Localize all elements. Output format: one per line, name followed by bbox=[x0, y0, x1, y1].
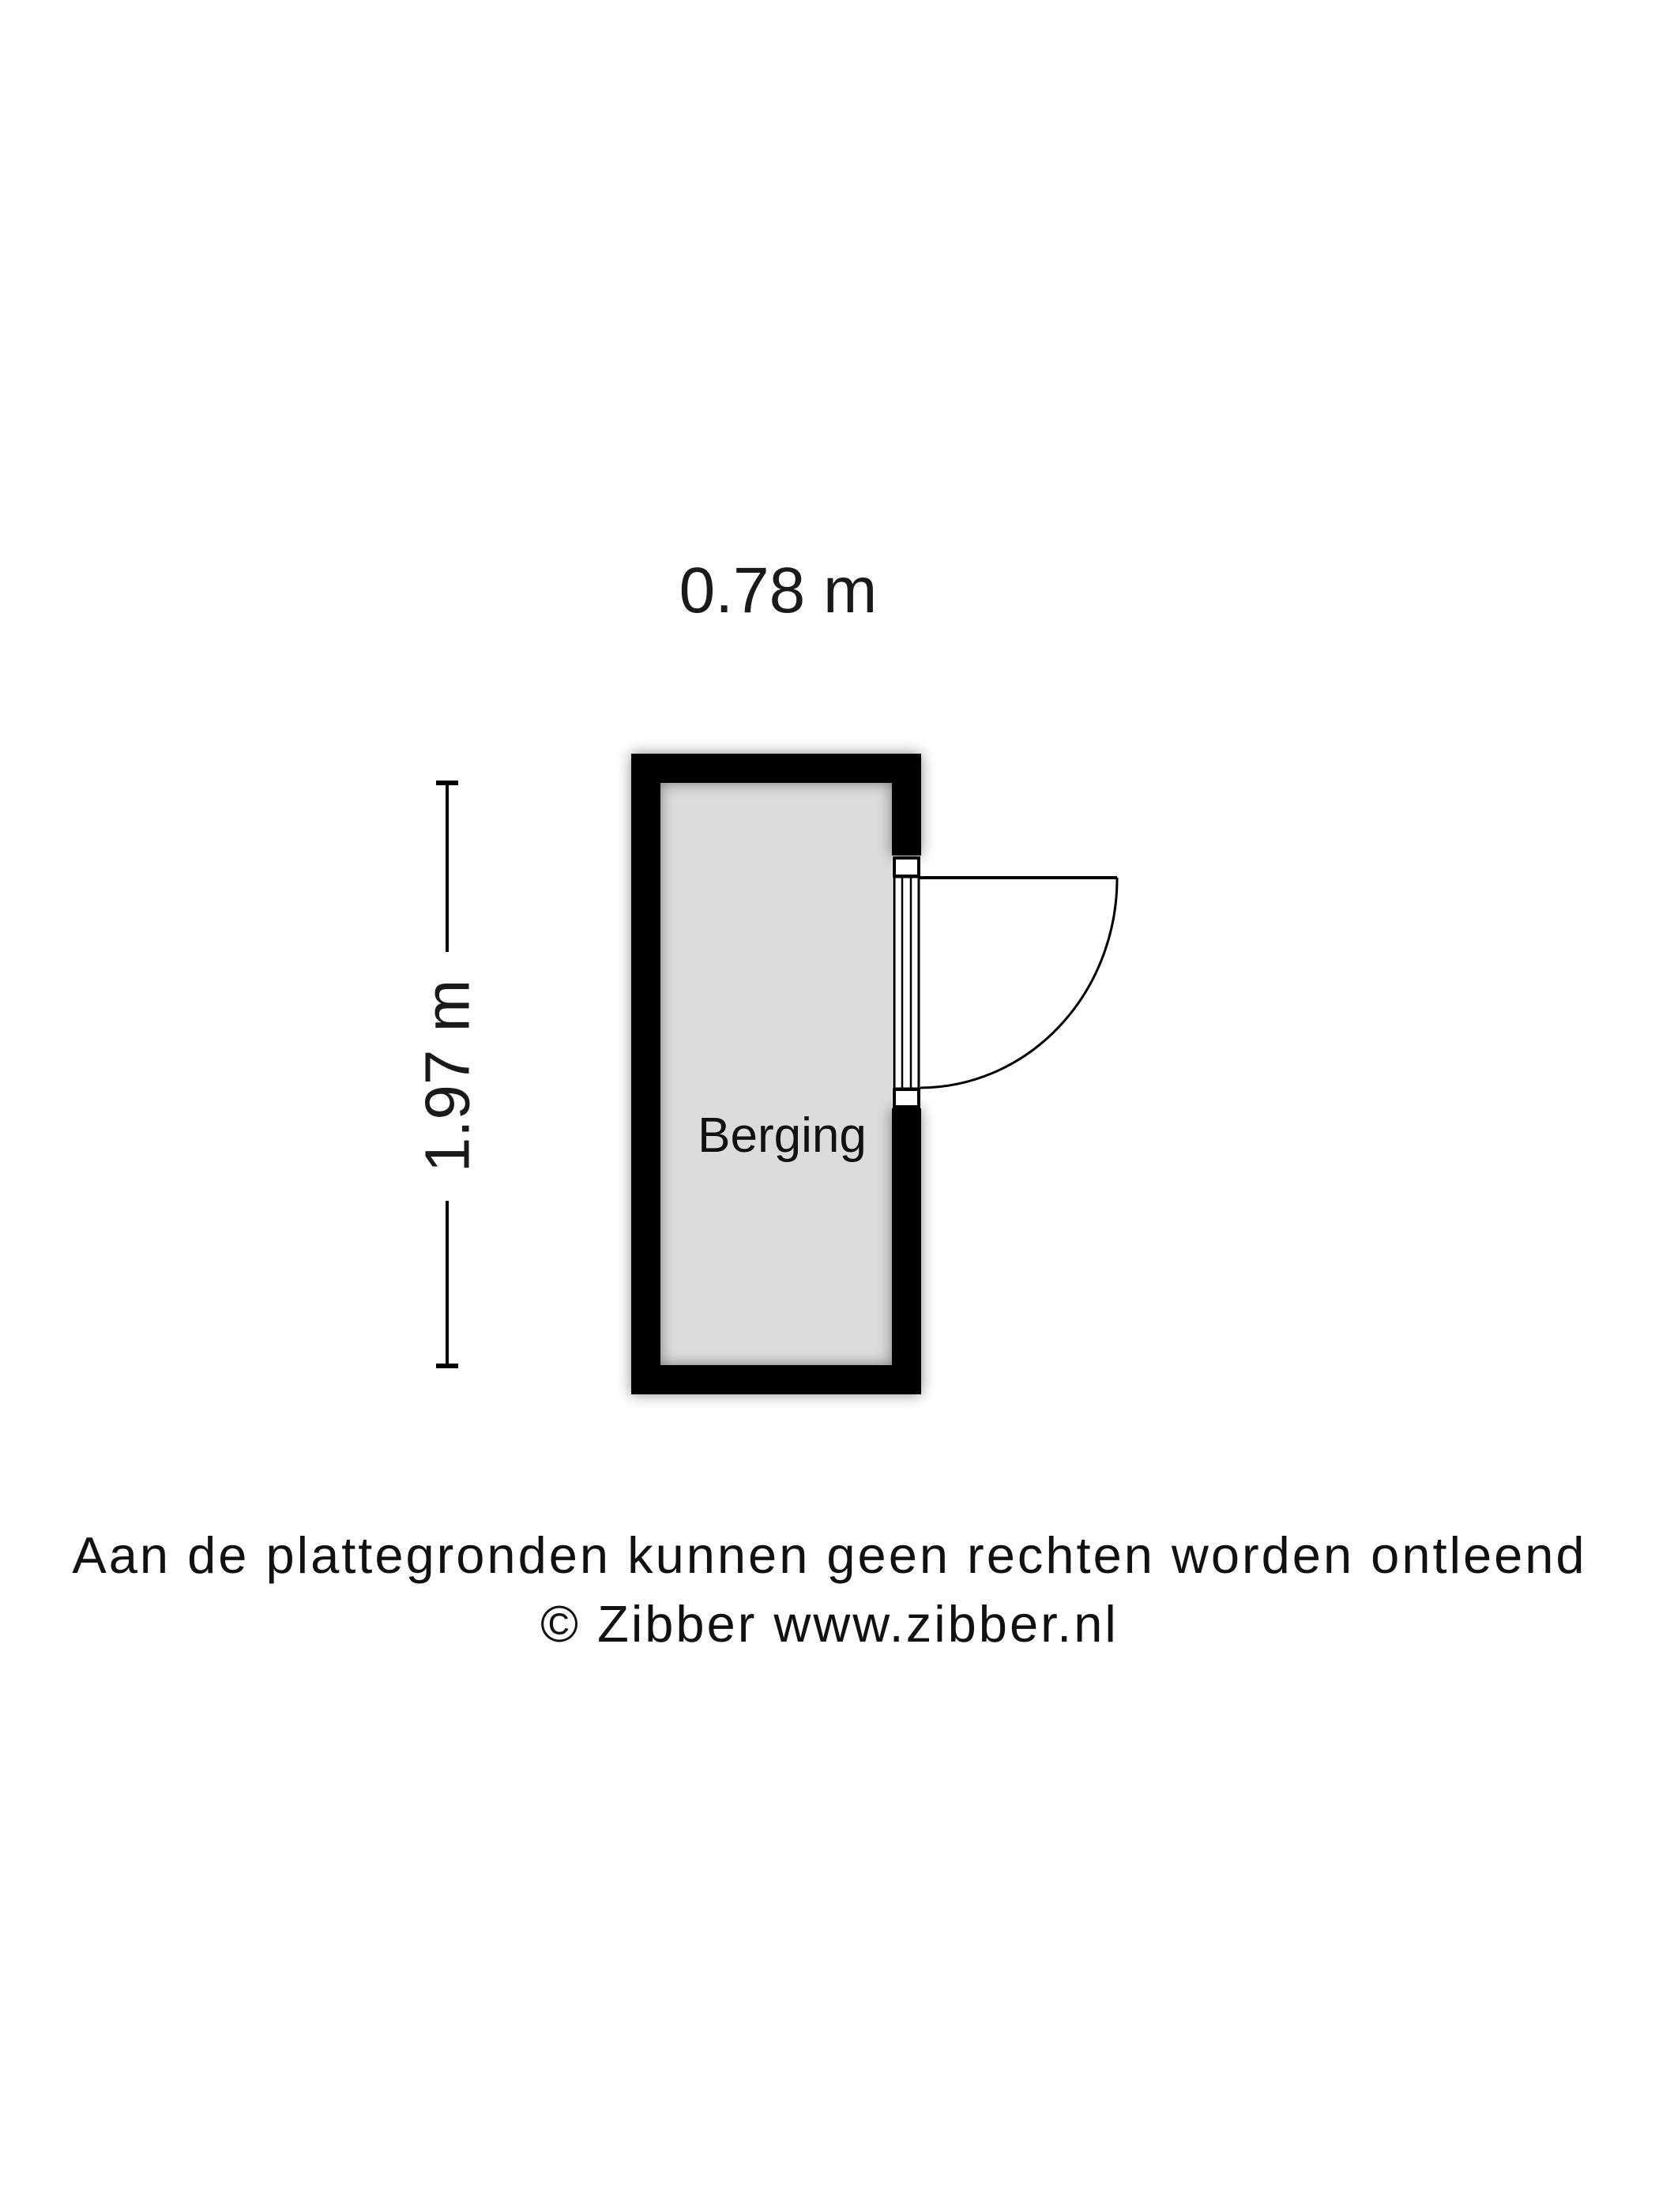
footer: Aan de plattegronden kunnen geen rechten… bbox=[0, 1521, 1659, 1658]
disclaimer-text: Aan de plattegronden kunnen geen rechten… bbox=[0, 1521, 1659, 1589]
copyright-text: © Zibber www.zibber.nl bbox=[0, 1589, 1659, 1658]
door-jamb-bottom bbox=[894, 1089, 919, 1107]
floorplan-drawing: 0.78 m 1.97 m Berging bbox=[0, 0, 1659, 2212]
dimension-height-label: 1.97 m bbox=[412, 980, 483, 1173]
room-floor bbox=[660, 783, 892, 1365]
door bbox=[894, 858, 1117, 1107]
door-jamb-top bbox=[894, 858, 919, 876]
dimension-width-label: 0.78 m bbox=[679, 555, 878, 626]
floorplan-page: 0.78 m 1.97 m Berging Aan de plattegrond… bbox=[0, 0, 1659, 2212]
room-label: Berging bbox=[698, 1108, 867, 1163]
door-panel bbox=[894, 877, 919, 1089]
door-swing-arc bbox=[920, 878, 1117, 1088]
